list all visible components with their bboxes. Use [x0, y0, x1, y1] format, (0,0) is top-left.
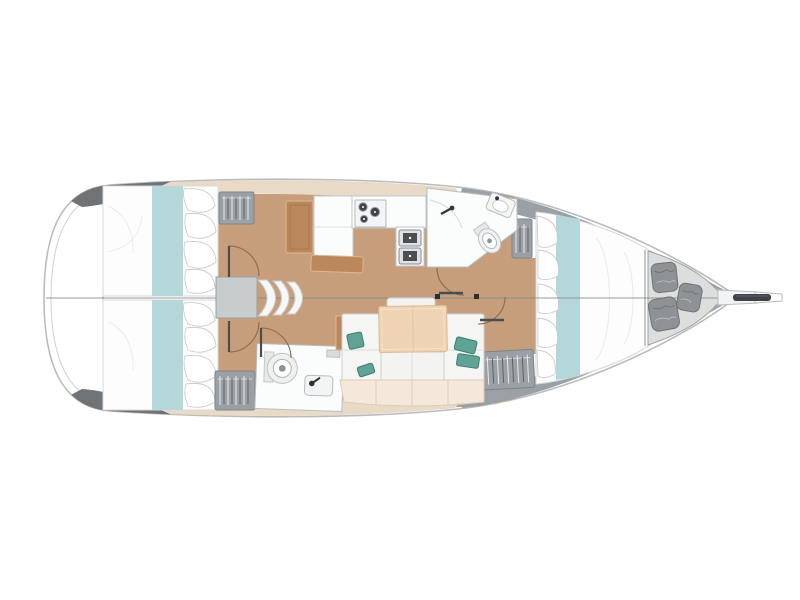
interior — [46, 180, 737, 416]
aft-head — [255, 343, 344, 411]
hanging-locker-forward-bottom — [482, 349, 535, 390]
aft-cabin-port-bed — [103, 186, 218, 296]
anchor-shaft — [733, 294, 771, 301]
dining-table — [379, 305, 448, 352]
washbasin — [304, 375, 333, 396]
hanging-locker-aft-starboard — [215, 371, 255, 410]
galley-double-sink — [396, 227, 424, 266]
aft-cabin-starboard-bed — [103, 300, 218, 410]
forward-cabin-floor — [480, 258, 540, 354]
yacht-layout-diagram — [0, 0, 800, 600]
steps-platform — [216, 277, 257, 318]
bowsprit-anchor-roller — [718, 290, 782, 305]
galley-bench — [311, 255, 364, 273]
stove-3-burner — [355, 200, 386, 227]
floorplan-svg — [0, 0, 800, 600]
door-stop-forward-cabin — [474, 294, 479, 299]
saloon — [336, 298, 484, 407]
hanging-locker-aft-port — [219, 192, 254, 224]
door-stop-forward-head — [435, 294, 440, 299]
nav-desk — [286, 201, 313, 253]
